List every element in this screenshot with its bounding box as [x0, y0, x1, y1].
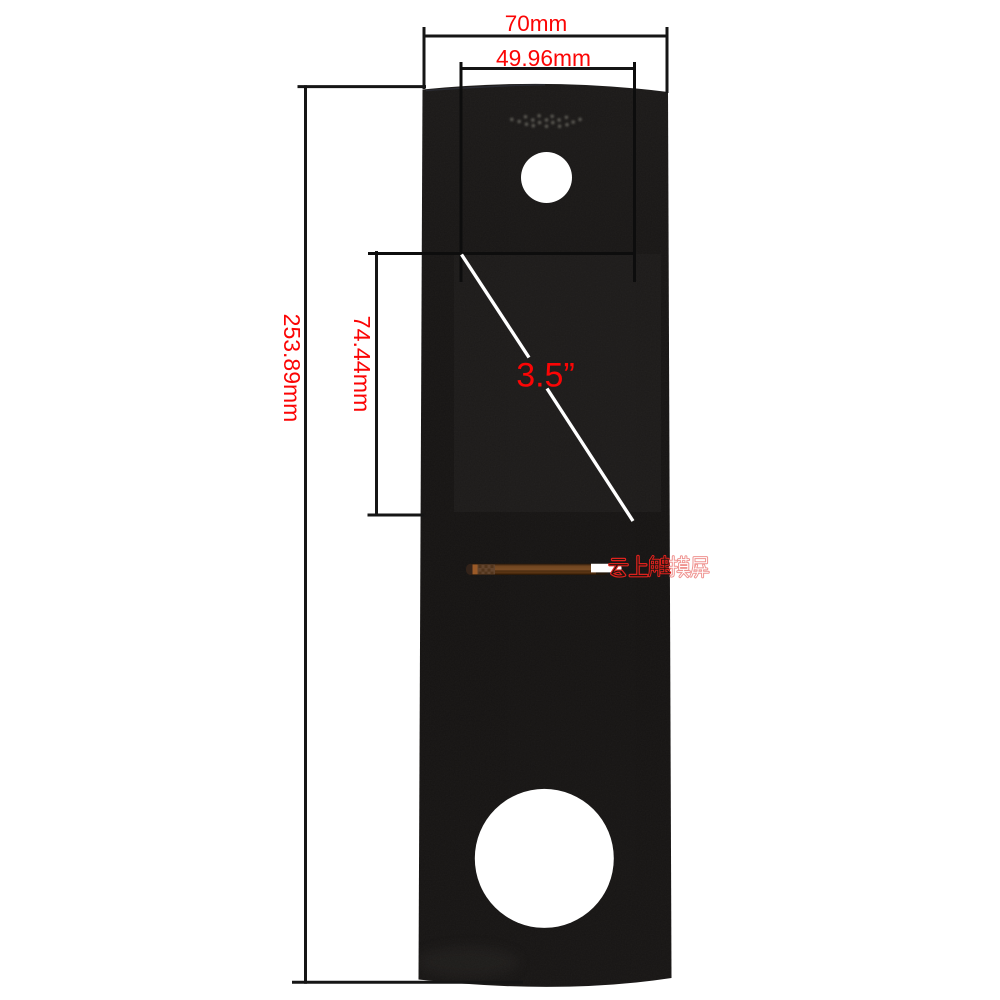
svg-text:70mm: 70mm — [505, 11, 568, 36]
svg-text:253.89mm: 253.89mm — [279, 314, 305, 423]
svg-text:3.5”: 3.5” — [516, 357, 575, 395]
svg-text:49.96mm: 49.96mm — [496, 45, 591, 71]
svg-text:74.44mm: 74.44mm — [349, 316, 375, 413]
